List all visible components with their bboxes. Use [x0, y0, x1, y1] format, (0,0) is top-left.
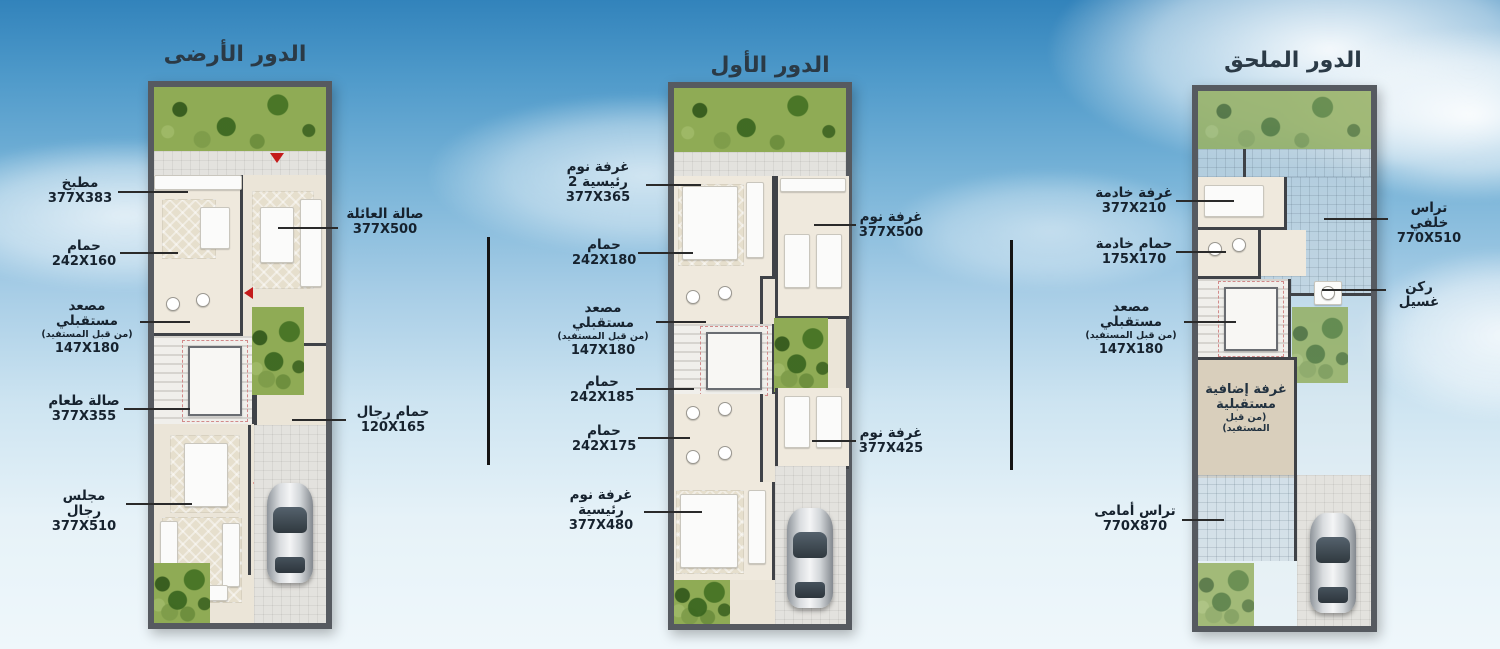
wall [1243, 149, 1246, 177]
walkway [674, 152, 846, 176]
label-front-terrace: تراس أمامى 770X870 [1090, 504, 1180, 535]
room-name: مصعد مستقبلي [36, 299, 138, 329]
label-dining-hall: صالة طعام 377X355 [46, 394, 122, 425]
label-master-bedroom-2: غرفة نوم رئيسية 2 377X365 [552, 160, 644, 206]
room-dims: 377X383 [42, 191, 118, 207]
room-dims: 377X355 [46, 409, 122, 425]
room-dims: 377X425 [858, 441, 924, 457]
room-dims: 377X365 [552, 190, 644, 206]
room-note: (من قبل المستفيد) [1080, 330, 1182, 341]
room-note: (من قبل المستفيد) [552, 331, 654, 342]
back-garden [154, 87, 326, 151]
label-future-elevator: مصعد مستقبلي (من قبل المستفيد) 147X180 [36, 299, 138, 356]
first-floor-title: الدور الأول [695, 53, 845, 78]
leader-line [812, 440, 856, 442]
room-dims: 147X180 [1080, 342, 1182, 358]
bathroom [154, 281, 243, 336]
room-note: (من قبل المستفيد) [1202, 412, 1290, 435]
dining-table [184, 443, 228, 507]
back-garden [1198, 91, 1371, 149]
leader-line [1184, 321, 1236, 323]
room-name: حمام رجال [348, 405, 438, 420]
leader-line [638, 437, 690, 439]
family-seat [260, 207, 294, 263]
room-dims: 175X170 [1094, 252, 1174, 268]
sink-fixture [718, 286, 732, 300]
leader-line [646, 184, 701, 186]
leader-line [1324, 218, 1388, 220]
leader-line [644, 511, 702, 513]
room-name: حمام خادمة [1094, 237, 1174, 252]
room-dims: 120X165 [348, 420, 438, 436]
future-room-label: غرفة إضافية مستقبلية (من قبل المستفيد) [1202, 383, 1290, 435]
front-terrace [1198, 475, 1294, 561]
label-family-hall: صالة العائلة 377X500 [340, 207, 430, 238]
bathroom-1 [674, 276, 763, 327]
label-maid-bathroom: حمام خادمة 175X170 [1094, 237, 1174, 268]
front-garden-patch [674, 580, 730, 624]
courtyard-garden [252, 307, 304, 395]
room-dims: 377X500 [340, 222, 430, 238]
label-master-bedroom: غرفة نوم رئيسية 377X480 [560, 488, 642, 534]
courtyard-garden [1292, 307, 1348, 383]
label-bathroom-1: حمام 242X180 [572, 238, 636, 269]
room-name: غرفة نوم رئيسية [560, 488, 642, 518]
front-garden-patch [154, 563, 210, 623]
walkway [154, 151, 326, 175]
room-name: مجلس رجال [44, 489, 124, 519]
label-bathroom: حمام 242X160 [50, 239, 118, 270]
family-sofa [300, 199, 322, 287]
room-name: غرفة إضافية مستقبلية [1202, 383, 1290, 412]
leader-line [124, 408, 190, 410]
label-back-terrace: تراس خلفي 770X510 [1390, 201, 1468, 247]
room-dims: 377X510 [44, 519, 124, 535]
future-elevator-box [1224, 287, 1278, 351]
sink-fixture [196, 293, 210, 307]
closet [780, 178, 846, 192]
room-name: تراس خلفي [1390, 201, 1468, 231]
toilet-fixture [686, 290, 700, 304]
car [1310, 513, 1356, 613]
room-dims: 147X180 [36, 341, 138, 357]
wall [248, 425, 251, 575]
bed [682, 186, 738, 260]
ground-floor-title: الدور الأرضى [160, 42, 310, 67]
room-name: ركن غسيل [1388, 280, 1450, 310]
room-name: غرفة نوم رئيسية 2 [552, 160, 644, 190]
room-name: تراس أمامى [1090, 504, 1180, 519]
label-bathroom-2: حمام 242X185 [570, 375, 634, 406]
room-name: مطبخ [42, 176, 118, 191]
ground-floor-plan [148, 81, 332, 629]
car [787, 508, 833, 608]
sink-fixture [718, 446, 732, 460]
back-garden [674, 88, 846, 152]
wall [254, 395, 257, 425]
room-name: صالة العائلة [340, 207, 430, 222]
leader-line [1176, 251, 1226, 253]
room-dims: 770X510 [1390, 231, 1468, 247]
wardrobe [748, 490, 766, 564]
master-bedroom [674, 482, 775, 580]
twin-bed [816, 234, 842, 288]
room-dims: 377X480 [560, 518, 642, 534]
label-bedroom-right: غرفة نوم 377X500 [858, 210, 924, 241]
majlis-sofa [222, 523, 240, 587]
room-dims: 242X160 [50, 254, 118, 270]
room-name: حمام [572, 238, 636, 253]
label-laundry-corner: ركن غسيل [1388, 280, 1450, 310]
leader-line [118, 191, 188, 193]
room-name: حمام [570, 375, 634, 390]
leader-line [1176, 200, 1234, 202]
room-name: حمام [50, 239, 118, 254]
room-dims: 770X870 [1090, 519, 1180, 535]
room-name: غرفة نوم [858, 210, 924, 225]
twin-bed [784, 234, 810, 288]
leader-line [140, 321, 190, 323]
toilet-fixture [166, 297, 180, 311]
label-kitchen: مطبخ 377X383 [42, 176, 118, 207]
car [267, 483, 313, 583]
back-terrace-strip [1198, 149, 1371, 177]
label-future-elevator: مصعد مستقبلي (من قبل المستفيد) 147X180 [1080, 300, 1182, 357]
master-bedroom-2 [674, 176, 775, 279]
kitchen-counter [154, 175, 242, 190]
room-dims: 147X180 [552, 343, 654, 359]
bathroom-2 [674, 394, 763, 441]
bedroom-right [775, 176, 849, 319]
room-dims: 377X210 [1094, 201, 1174, 217]
label-bedroom-lower-right: غرفة نوم 377X425 [858, 426, 924, 457]
toilet-fixture [686, 450, 700, 464]
room-dims: 242X175 [572, 439, 636, 455]
leader-line [278, 227, 338, 229]
entry-arrow-icon [270, 153, 284, 163]
laundry-corner [1314, 281, 1342, 305]
hallway [1261, 230, 1306, 276]
future-elevator-box [706, 332, 762, 390]
room-name: حمام [572, 424, 636, 439]
leader-line [1182, 519, 1224, 521]
kitchen-table [200, 207, 230, 249]
first-floor-plan [668, 82, 852, 630]
twin-bed [784, 396, 810, 448]
section-divider [487, 237, 490, 465]
leader-line [292, 419, 346, 421]
leader-line [120, 252, 178, 254]
room-dims: 242X185 [570, 390, 634, 406]
label-future-elevator: مصعد مستقبلي (من قبل المستفيد) 147X180 [552, 301, 654, 358]
sink-fixture [718, 402, 732, 416]
annex-floor-plan: غرفة إضافية مستقبلية (من قبل المستفيد) [1192, 85, 1377, 632]
label-men-majlis: مجلس رجال 377X510 [44, 489, 124, 535]
leader-line [126, 503, 192, 505]
room-name: غرفة نوم [858, 426, 924, 441]
room-name: مصعد مستقبلي [1080, 300, 1182, 330]
toilet-fixture [1208, 242, 1222, 256]
leader-line [814, 224, 856, 226]
leader-line [636, 388, 694, 390]
bedroom-lower-right [775, 388, 849, 469]
room-name: صالة طعام [46, 394, 122, 409]
sink-fixture [1232, 238, 1246, 252]
room-note: (من قبل المستفيد) [36, 329, 138, 340]
room-dims: 377X500 [858, 225, 924, 241]
wardrobe [746, 182, 764, 258]
maid-room [1198, 177, 1287, 230]
label-maid-room: غرفة خادمة 377X210 [1094, 186, 1174, 217]
front-garden-patch [1198, 563, 1254, 626]
room-dims: 242X180 [572, 253, 636, 269]
entry-arrow-icon [244, 287, 253, 299]
leader-line [1322, 289, 1386, 291]
toilet-fixture [686, 406, 700, 420]
section-divider [1010, 240, 1013, 470]
courtyard-garden [774, 318, 828, 392]
leader-line [638, 252, 693, 254]
label-bathroom-3: حمام 242X175 [572, 424, 636, 455]
maid-bathroom [1198, 230, 1261, 279]
leader-line [656, 321, 706, 323]
future-elevator-box [188, 346, 242, 416]
label-men-bathroom: حمام رجال 120X165 [348, 405, 438, 436]
annex-floor-title: الدور الملحق [1218, 48, 1368, 73]
bathroom-3 [674, 438, 763, 485]
room-name: مصعد مستقبلي [552, 301, 654, 331]
room-name: غرفة خادمة [1094, 186, 1174, 201]
bed [680, 494, 738, 568]
